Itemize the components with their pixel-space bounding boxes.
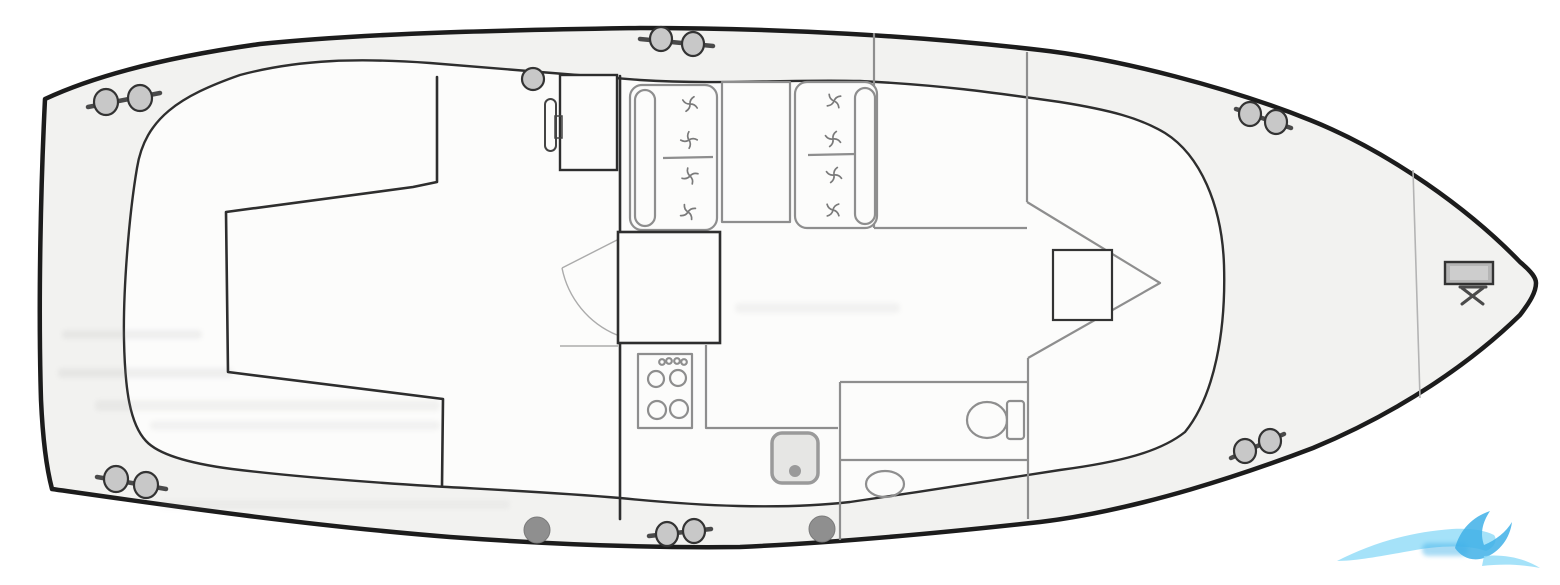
cleat-horn: [683, 519, 705, 543]
cleat-horn: [128, 85, 152, 111]
windlass-drum: [1450, 266, 1488, 280]
sink-drain: [789, 465, 801, 477]
berth-hatch: [1053, 250, 1112, 320]
cleat-horn: [1265, 110, 1287, 134]
page: [0, 0, 1560, 585]
cleat-horn: [1259, 429, 1281, 453]
scan-smudge: [95, 400, 440, 411]
settee-starboard-divider: [808, 154, 856, 155]
scan-smudge: [62, 330, 202, 339]
toilet-bowl: [967, 402, 1007, 438]
cleat-horn: [104, 466, 128, 492]
helm-console: [560, 75, 617, 170]
wave-logo-watermark: [1337, 511, 1540, 568]
scan-smudge: [160, 500, 510, 509]
toilet-tank: [1007, 401, 1024, 439]
scan-smudge: [735, 303, 900, 313]
mooring-bollard: [522, 68, 544, 90]
galley-block: [618, 232, 720, 343]
cleat-horn: [650, 27, 672, 51]
deck-fitting: [809, 516, 835, 542]
deck-fitting: [524, 517, 550, 543]
cleat-horn: [94, 89, 118, 115]
wave-tail-icon: [1482, 556, 1540, 569]
watermark-blurred-text: [1422, 543, 1468, 556]
cleat-horn: [134, 472, 158, 498]
cleat-horn: [1234, 439, 1256, 463]
scan-smudge: [150, 421, 440, 430]
cleat-horn: [656, 522, 678, 546]
cleat-horn: [682, 32, 704, 56]
boat-floor-plan: [0, 0, 1560, 585]
settee-port-divider: [663, 157, 713, 158]
dinette-table: [722, 82, 790, 222]
scan-smudge: [58, 368, 233, 378]
dinette: [630, 82, 877, 230]
cleat-horn: [1239, 102, 1261, 126]
